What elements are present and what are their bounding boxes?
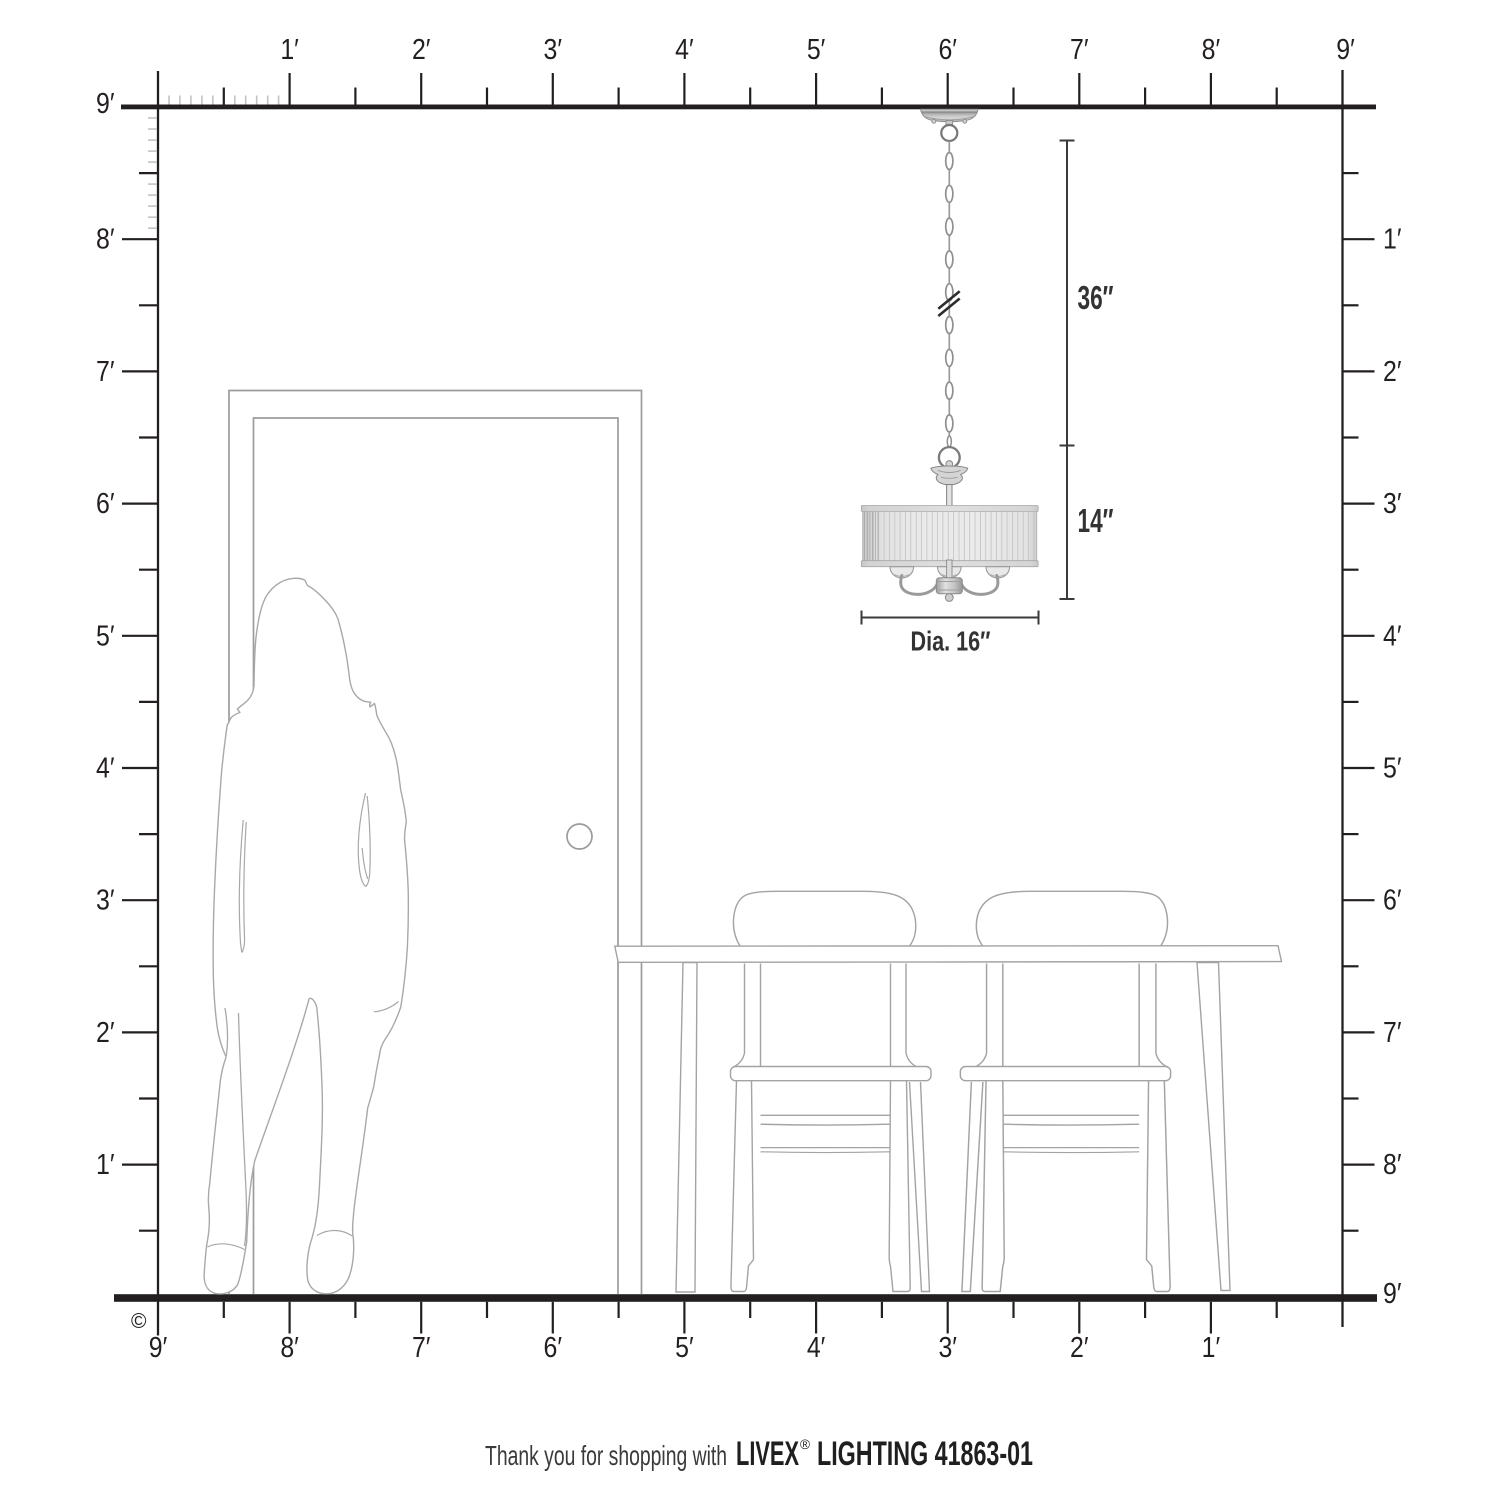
svg-text:8′: 8′	[280, 1332, 299, 1364]
svg-text:5′: 5′	[807, 34, 826, 66]
svg-text:6′: 6′	[938, 34, 957, 66]
svg-text:1′: 1′	[96, 1149, 115, 1181]
svg-text:8′: 8′	[1202, 34, 1221, 66]
svg-text:6′: 6′	[96, 488, 115, 520]
svg-text:6′: 6′	[1383, 885, 1402, 917]
svg-text:7′: 7′	[1383, 1017, 1402, 1049]
svg-text:7′: 7′	[1070, 34, 1089, 66]
svg-text:2′: 2′	[412, 34, 431, 66]
svg-text:14″: 14″	[1078, 502, 1114, 539]
svg-text:3′: 3′	[938, 1332, 957, 1364]
svg-text:3′: 3′	[96, 885, 115, 917]
svg-text:5′: 5′	[1383, 753, 1402, 785]
svg-text:3′: 3′	[1383, 488, 1402, 520]
svg-text:®: ®	[800, 1437, 810, 1452]
svg-text:7′: 7′	[412, 1332, 431, 1364]
svg-text:4′: 4′	[1383, 620, 1402, 652]
svg-text:1′: 1′	[1383, 224, 1402, 256]
svg-text:5′: 5′	[675, 1332, 694, 1364]
svg-text:2′: 2′	[96, 1017, 115, 1049]
svg-text:1′: 1′	[280, 34, 299, 66]
svg-text:8′: 8′	[1383, 1149, 1402, 1181]
svg-text:9′: 9′	[1336, 34, 1355, 66]
svg-text:4′: 4′	[96, 753, 115, 785]
svg-text:7′: 7′	[96, 356, 115, 388]
svg-text:©: ©	[131, 1310, 147, 1333]
svg-text:9′: 9′	[96, 88, 115, 120]
svg-text:5′: 5′	[96, 620, 115, 652]
svg-text:6′: 6′	[544, 1332, 563, 1364]
svg-text:Thank you for shopping with: Thank you for shopping with	[485, 1440, 727, 1471]
svg-text:8′: 8′	[96, 224, 115, 256]
svg-text:4′: 4′	[807, 1332, 826, 1364]
svg-text:2′: 2′	[1383, 356, 1402, 388]
svg-text:36″: 36″	[1078, 279, 1114, 316]
svg-text:3′: 3′	[544, 34, 563, 66]
svg-text:LIVEX: LIVEX	[736, 1435, 799, 1473]
svg-text:Dia. 16″: Dia. 16″	[911, 626, 991, 657]
svg-text:9′: 9′	[1383, 1278, 1402, 1310]
svg-text:9′: 9′	[149, 1332, 168, 1364]
svg-text:2′: 2′	[1070, 1332, 1089, 1364]
svg-text:4′: 4′	[675, 34, 694, 66]
svg-text:1′: 1′	[1202, 1332, 1221, 1364]
svg-text:LIGHTING 41863-01: LIGHTING 41863-01	[817, 1435, 1033, 1473]
